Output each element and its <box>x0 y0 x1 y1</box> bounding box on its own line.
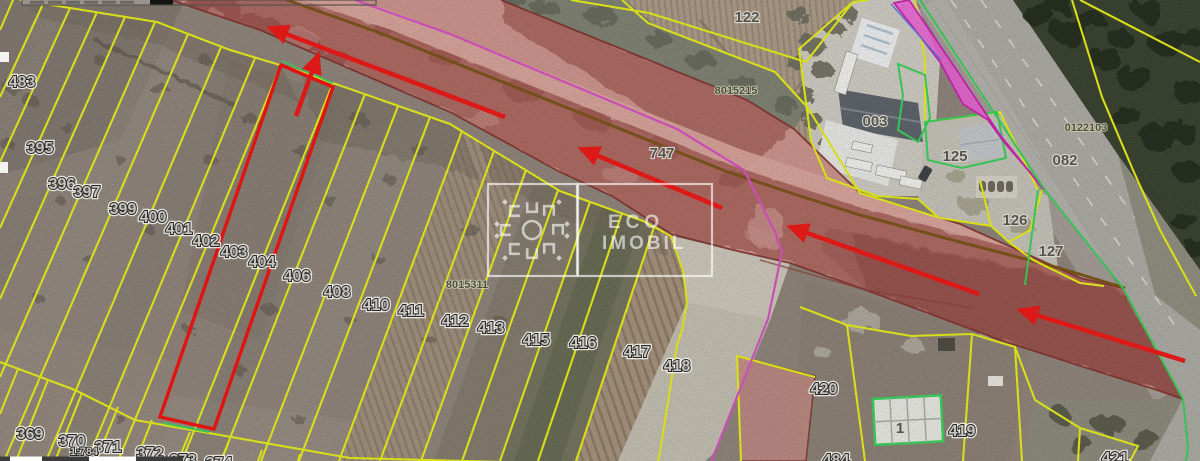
svg-text:413: 413 <box>478 320 505 337</box>
svg-text:412: 412 <box>442 313 469 330</box>
svg-text:410: 410 <box>363 297 390 314</box>
svg-text:ECO: ECO <box>608 212 664 233</box>
svg-text:415: 415 <box>523 332 550 349</box>
svg-text:404: 404 <box>249 254 276 271</box>
svg-text:401: 401 <box>166 221 193 238</box>
svg-text:419: 419 <box>949 423 976 440</box>
svg-text:421: 421 <box>1102 450 1129 461</box>
svg-text:369: 369 <box>17 426 44 443</box>
svg-text:126: 126 <box>1002 212 1027 229</box>
svg-text:1: 1 <box>896 420 904 437</box>
svg-text:420: 420 <box>811 381 838 398</box>
svg-text:406: 406 <box>284 268 311 285</box>
svg-text:411: 411 <box>398 303 424 320</box>
svg-text:125: 125 <box>942 148 967 165</box>
svg-text:003: 003 <box>862 113 887 130</box>
svg-text:484: 484 <box>823 452 850 461</box>
svg-text:483: 483 <box>9 74 36 91</box>
svg-text:0122103: 0122103 <box>1065 122 1108 134</box>
svg-text:122: 122 <box>734 9 759 26</box>
svg-text:418: 418 <box>664 358 691 375</box>
svg-text:747: 747 <box>649 145 674 162</box>
svg-text:417: 417 <box>624 344 651 361</box>
svg-text:402: 402 <box>193 233 220 250</box>
svg-text:IMOBIL: IMOBIL <box>602 233 687 254</box>
svg-text:403: 403 <box>221 244 248 261</box>
svg-text:371: 371 <box>95 439 122 456</box>
svg-text:395: 395 <box>27 140 54 157</box>
svg-text:8015215: 8015215 <box>715 85 758 97</box>
svg-text:397: 397 <box>74 184 101 201</box>
svg-text:400: 400 <box>140 209 167 226</box>
svg-text:374: 374 <box>206 455 233 461</box>
svg-text:408: 408 <box>324 284 351 301</box>
svg-text:416: 416 <box>570 335 597 352</box>
svg-text:082: 082 <box>1052 152 1077 169</box>
svg-text:8015311: 8015311 <box>446 279 488 291</box>
svg-text:127: 127 <box>1038 243 1063 260</box>
svg-text:399: 399 <box>110 201 137 218</box>
svg-text:396: 396 <box>49 176 76 193</box>
svg-text:1:784: 1:784 <box>70 446 99 458</box>
